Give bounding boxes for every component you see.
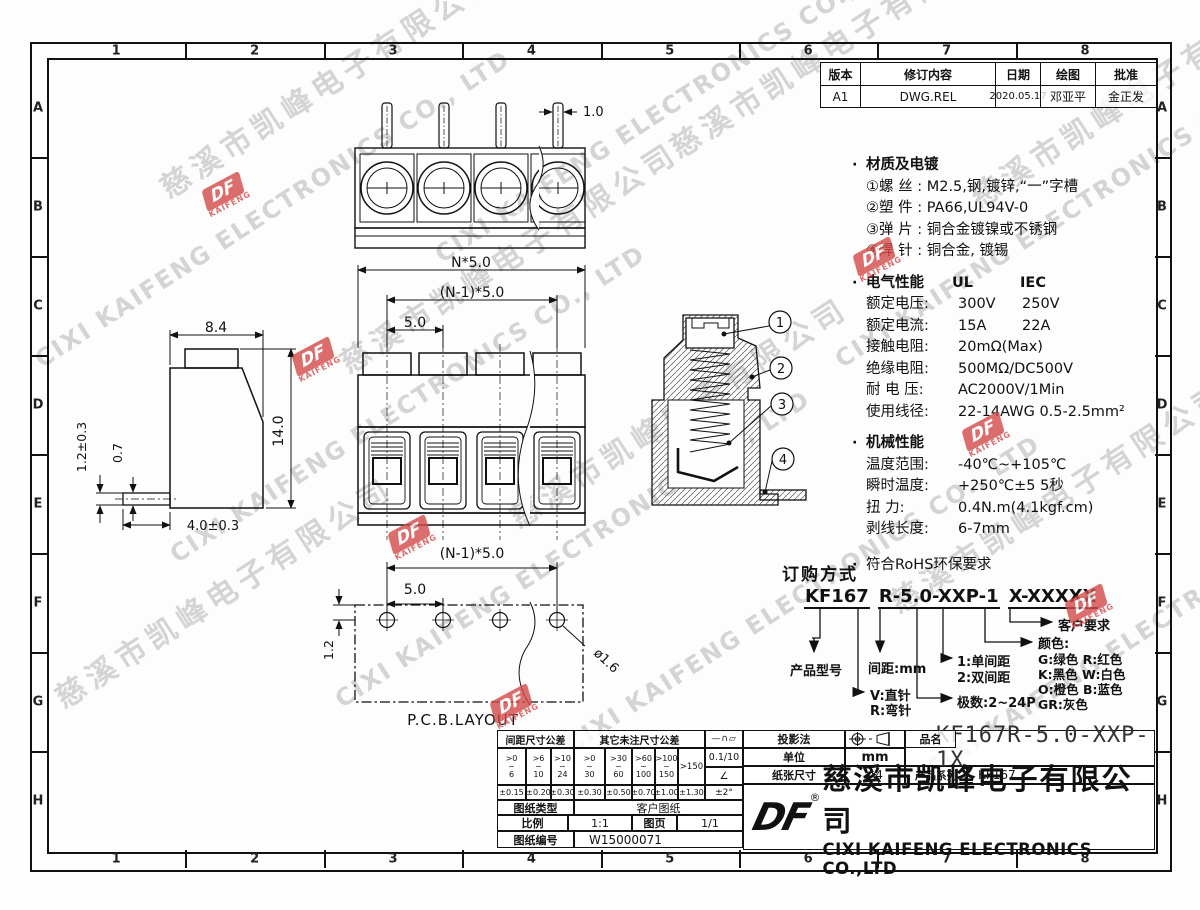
pcb-layout-label: P.C.B.LAYOUT	[407, 711, 519, 729]
grid-col-label: 2	[250, 44, 259, 59]
dim-hole-diameter: ø1.6	[590, 646, 621, 677]
grid-col-label: 6	[804, 44, 813, 59]
electrical-row: 使用线径:22-14AWG 0.5-2.5mm²	[852, 402, 1154, 424]
grid-tick	[739, 42, 741, 58]
grid-tick	[1155, 751, 1170, 753]
tol-angle-symbol: ∠	[705, 767, 743, 785]
grid-col-label: 6	[804, 852, 813, 867]
revision-date: 2020.05.17	[995, 85, 1040, 108]
company-name-en: CIXI KAIFENG ELECTRONICS CO.,LTD	[823, 840, 1154, 878]
tol-range: >100~150	[655, 748, 678, 785]
tol-value: ±1.30	[678, 785, 705, 800]
dim-pin-length: 4.0±0.3	[187, 519, 239, 534]
dim-body-height: 14.0	[271, 415, 287, 446]
electrical-col-iec: IEC	[1020, 273, 1046, 295]
product-name-label: 品名	[906, 731, 956, 748]
revision-approved-by: 金正发	[1095, 85, 1157, 108]
tol-range: >30~60	[605, 748, 632, 785]
electrical-title: · 电气性能 UL IEC	[852, 273, 1154, 295]
grid-col-label: 8	[1080, 44, 1089, 59]
dim-overall-length: N*5.0	[451, 255, 491, 271]
dim-pcb-pitch: 5.0	[404, 582, 426, 598]
grid-row-label: G	[33, 694, 44, 709]
ordering-label-customer: 客户要求	[1058, 615, 1110, 634]
balloon-3: 3	[778, 398, 786, 413]
tol-value: ±0.30	[574, 785, 605, 800]
tol-value: ±0.70	[632, 785, 655, 800]
grid-col-label: 4	[527, 44, 536, 59]
grid-row-label: C	[1157, 298, 1167, 313]
sheet-type-label: 图纸类型	[497, 800, 574, 815]
bullet: ·	[852, 155, 866, 177]
company-name-cn: 慈溪市凯峰电子有限公司	[823, 756, 1154, 840]
tol-flatness: 0.1/10	[705, 748, 743, 767]
dim-pin-width: 1.0	[583, 105, 604, 120]
ordering-title: 订购方式	[782, 560, 858, 585]
tol-value: ±0.15	[497, 785, 526, 800]
grid-tick	[739, 850, 741, 868]
grid-tick	[1155, 553, 1170, 555]
grid-row-label: D	[1157, 397, 1168, 412]
grid-row-label: E	[34, 496, 43, 511]
electrical-col-ul: UL	[952, 273, 973, 295]
tol-other-header: 其它未注尺寸公差	[574, 730, 705, 748]
dim-pcb-center-span: (N-1)*5.0	[440, 546, 505, 562]
tol-range: >150	[678, 748, 705, 785]
grid-tick	[30, 751, 47, 753]
grid-col-label: 5	[665, 852, 674, 867]
mechanical-row: 剥线长度:6-7mm	[852, 519, 1154, 541]
grid-tick	[30, 652, 47, 654]
grid-tick	[462, 42, 464, 58]
page-label: 图页	[632, 815, 677, 831]
grid-col-label: 1	[112, 852, 121, 867]
tol-angle-value: ±2°	[705, 785, 743, 800]
electrical-row: 绝缘电阻:500MΩ/DC500V	[852, 359, 1154, 381]
grid-row-label: D	[33, 397, 44, 412]
grid-tick	[1155, 256, 1170, 258]
projection-symbol	[845, 730, 905, 748]
material-line: ①螺 丝 : M2.5,钢,镀锌,“一”字槽	[852, 177, 1154, 199]
grid-tick	[1155, 157, 1170, 159]
scale-label: 比例	[497, 815, 568, 831]
ordering-label-double-pitch: 2:双间距	[957, 667, 1010, 686]
first-angle-projection-icon	[849, 732, 901, 746]
grid-row-label: H	[1157, 793, 1168, 808]
tol-value: ±1.00	[655, 785, 678, 800]
electrical-title-text: 电气性能	[866, 273, 924, 295]
dim-pitch: 5.0	[404, 315, 426, 331]
pcb-layout-drawing: (N-1)*5.0 5.0 1.2 ø1.6 P.C.B.LAYOUT	[325, 542, 625, 737]
drawing-no-label: 图纸编号	[497, 831, 574, 848]
revision-version: A1	[820, 85, 860, 108]
tol-value: ±0.30	[551, 785, 574, 800]
grid-row-label: B	[33, 199, 43, 214]
cross-section-drawing: 1 2 3 4	[628, 300, 813, 525]
dim-pin-web: 0.7	[110, 443, 125, 463]
material-line: ④焊 针 : 铜合金, 镀锡	[852, 241, 1154, 263]
side-view-drawing: 8.4 14.0 1.2±0.3 0.7 4.0±0.3	[70, 325, 305, 540]
projection-label: 投影法	[743, 730, 845, 748]
tol-range: >0~30	[574, 748, 605, 785]
electrical-row: 额定电压:300V250V	[852, 294, 1154, 316]
grid-tick	[1016, 42, 1018, 58]
dim-body-width: 8.4	[205, 320, 227, 336]
grid-row-label: A	[1157, 100, 1167, 115]
ordering-label-pitch: 间距:mm	[868, 658, 926, 677]
grid-tick	[185, 850, 187, 868]
revision-drawn-by: 邓亚平	[1040, 85, 1095, 108]
sheet-type-value: 客户图纸	[574, 800, 743, 815]
rohs-text: 符合RoHS环保要求	[866, 555, 991, 577]
ordering-label-model: 产品型号	[790, 660, 842, 679]
electrical-row: 耐 电 压:AC2000V/1Min	[852, 380, 1154, 402]
tol-range: >6~10	[526, 748, 551, 785]
mechanical-title-text: 机械性能	[866, 433, 924, 455]
tol-pitch-header: 间距尺寸公差	[497, 730, 574, 748]
grid-col-label: 2	[250, 852, 259, 867]
grid-col-label: 4	[527, 852, 536, 867]
company-logo: DF	[749, 798, 812, 836]
spec-block: · 材质及电镀 ①螺 丝 : M2.5,钢,镀锌,“一”字槽 ②塑 件 : PA…	[852, 155, 1154, 576]
ordering-label-poles: 极数:2~24P	[957, 692, 1036, 711]
balloon-2: 2	[777, 362, 785, 377]
tol-range: >10~24	[551, 748, 574, 785]
revision-table: 版本 修订内容 日期 绘图 批准 A1 DWG.REL 2020.05.17 邓…	[820, 62, 1157, 108]
material-title: · 材质及电镀	[852, 155, 1154, 177]
tol-symbols: —∩▱	[705, 730, 743, 748]
dim-pcb-edge: 1.2	[321, 640, 336, 660]
grid-tick	[30, 256, 47, 258]
ordering-label-right-angle: R:弯针	[870, 700, 911, 719]
grid-col-label: 1	[112, 44, 121, 59]
rohs-note: · 符合RoHS环保要求	[852, 555, 1154, 577]
grid-tick	[462, 850, 464, 868]
grid-col-label: 3	[388, 852, 397, 867]
grid-row-label: A	[33, 100, 43, 115]
mechanical-row: 温度范围:-40℃~+105℃	[852, 455, 1154, 477]
material-title-text: 材质及电镀	[866, 155, 939, 177]
balloon-4: 4	[779, 453, 787, 468]
grid-row-label: C	[33, 298, 43, 313]
dim-pin-thickness: 1.2±0.3	[74, 422, 89, 472]
scale-value: 1:1	[568, 815, 632, 831]
mechanical-row: 扭 力:0.4N.m(4.1kgf.cm)	[852, 498, 1154, 520]
balloon-1: 1	[776, 316, 784, 331]
grid-tick	[30, 157, 47, 159]
grid-tick	[324, 850, 326, 868]
bullet: ·	[852, 433, 866, 455]
grid-tick	[601, 850, 603, 868]
grid-row-label: B	[1157, 199, 1167, 214]
bullet: ·	[852, 273, 866, 295]
revision-header: 修订内容	[860, 62, 995, 85]
mechanical-row: 瞬时温度:+250℃±5 5秒	[852, 476, 1154, 498]
revision-content: DWG.REL	[860, 85, 995, 108]
grid-col-label: 3	[388, 44, 397, 59]
revision-header: 绘图	[1040, 62, 1095, 85]
ordering-label-colors: GR:灰色	[1038, 694, 1088, 713]
grid-col-label: 7	[942, 44, 951, 59]
tol-value: ±0.20	[526, 785, 551, 800]
tol-range: >60~100	[632, 748, 655, 785]
grid-tick	[1155, 355, 1170, 357]
top-view-drawing: 1.0	[343, 90, 603, 255]
grid-row-label: H	[33, 793, 44, 808]
drawing-sheet: 慈溪市凯峰电子有限公司CIXI KAIFENG ELECTRONICS CO.,…	[0, 0, 1200, 910]
grid-tick	[30, 454, 47, 456]
grid-col-label: 5	[665, 44, 674, 59]
grid-tick	[30, 553, 47, 555]
front-view-drawing: N*5.0 (N-1)*5.0 5.0	[340, 258, 610, 548]
material-line: ②塑 件 : PA66,UL94V-0	[852, 198, 1154, 220]
material-line: ③弹 片 : 铜合金镀镍或不锈钢	[852, 220, 1154, 242]
grid-tick	[324, 42, 326, 58]
page-value: 1/1	[677, 815, 743, 831]
revision-header: 日期	[995, 62, 1040, 85]
grid-tick	[30, 355, 47, 357]
grid-tick	[601, 42, 603, 58]
grid-row-label: F	[34, 595, 43, 610]
grid-tick	[1155, 454, 1170, 456]
dim-center-span: (N-1)*5.0	[440, 285, 505, 301]
tol-value: ±0.50	[605, 785, 632, 800]
grid-row-label: E	[1158, 496, 1167, 511]
revision-header: 版本	[820, 62, 860, 85]
company-strip: DF ® 慈溪市凯峰电子有限公司 CIXI KAIFENG ELECTRONIC…	[743, 784, 1155, 850]
drawing-no-value: W15000071	[574, 831, 743, 848]
electrical-row: 接触电阻:20mΩ(Max)	[852, 337, 1154, 359]
mechanical-title: · 机械性能	[852, 433, 1154, 455]
revision-header: 批准	[1095, 62, 1157, 85]
grid-tick	[877, 42, 879, 58]
grid-tick	[185, 42, 187, 58]
tol-range: >0~6	[497, 748, 526, 785]
electrical-row: 额定电流:15A22A	[852, 316, 1154, 338]
